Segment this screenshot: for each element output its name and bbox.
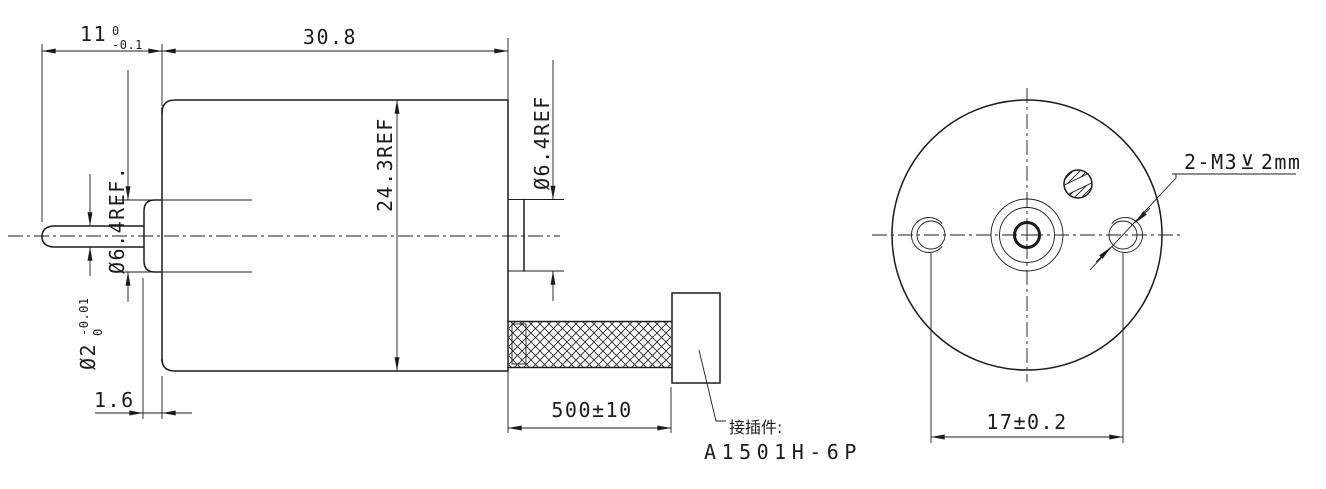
depth-symbol: ⊻ [1240,150,1255,174]
dim-11-tol-upper: 0 [112,24,120,38]
end-view: 2-M3⊻2mm 17±0.2 [872,88,1301,443]
dia-front-bushing-text: Ø6.4REF. [105,166,129,274]
dia-rear-boss-text: Ø6.4REF [530,95,554,190]
connector-model-text: A1501H-6P [704,440,862,464]
dim-17-text: 17±0.2 [986,410,1067,434]
motor-dimension-drawing: 11 0 -0.1 30.8 Ø6.4REF. Ø2 0 -0.01 24.3R… [0,0,1326,489]
center-cross [1021,229,1033,241]
dia-shaft-tol-lower: -0.01 [77,297,91,336]
dim-30-8-text: 30.8 [303,25,357,49]
dim-11-tol-lower: -0.1 [112,38,143,52]
thread-depth: 2mm [1261,150,1302,174]
hatched-hole-fill [1046,170,1109,198]
connector-note-cn-text: 接插件: [729,418,782,437]
dia-body-text: 24.3REF [373,117,397,212]
dia-shaft-tol-upper: 0 [91,328,105,336]
dia-shaft-text: Ø2 [76,343,100,370]
drawing-canvas: 11 0 -0.1 30.8 Ø6.4REF. Ø2 0 -0.01 24.3R… [0,0,1326,489]
thread-arrow-lower [1096,247,1111,262]
dim-11-text: 11 [80,22,107,46]
dim-500-text: 500±10 [551,398,632,422]
thread-prefix: 2-M3 [1184,150,1238,174]
connector-block [672,293,720,383]
dim-1-6-text: 1.6 [94,388,135,412]
thread-callout-text: 2-M3⊻2mm [1184,150,1301,174]
thread-arrow-upper [1135,208,1150,223]
cable-hatch [509,322,671,367]
body-bottom-edge [162,359,508,371]
body-top-edge [162,100,508,113]
side-view-dimensions: 11 0 -0.1 30.8 Ø6.4REF. Ø2 0 -0.01 24.3R… [42,22,862,464]
